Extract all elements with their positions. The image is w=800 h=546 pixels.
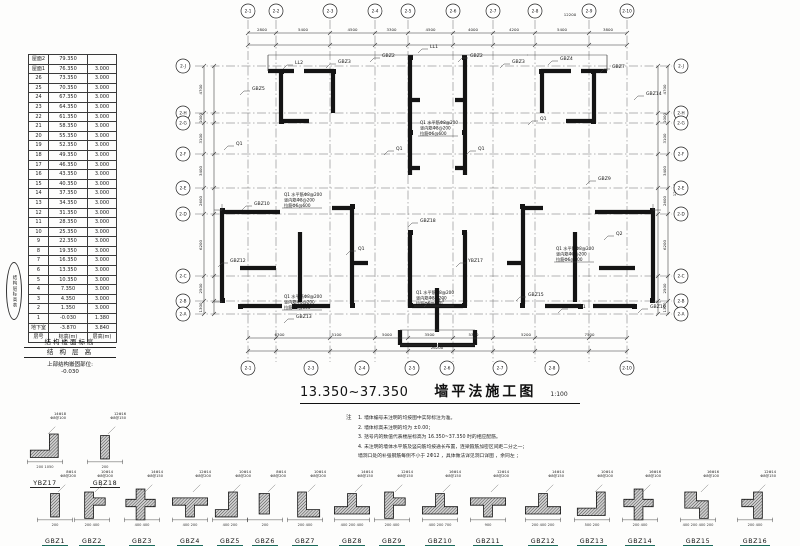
- dim-value: 5300: [469, 332, 479, 337]
- detail-section-shape: [283, 483, 327, 523]
- title-scale: 1:100: [550, 391, 567, 398]
- detail-label: GBZ8: [339, 537, 365, 546]
- wall-code-label: GBZ7: [612, 64, 625, 70]
- wall-code-label: Q1: [540, 116, 547, 122]
- wall-code-label: LL2: [295, 60, 303, 66]
- dim-value: 2600: [662, 196, 667, 206]
- detail-label: GBZ16: [740, 537, 771, 546]
- dim-value: 6300: [275, 332, 285, 337]
- detail-gbz15: 16Φ16Φ8@100400 200 400 200GBZ15: [676, 470, 720, 546]
- detail-label: GBZ14: [625, 537, 656, 546]
- detail-label: GBZ4: [177, 537, 203, 546]
- axis-label: 2-D: [179, 212, 186, 217]
- wall-code-label: GBZ12: [230, 258, 246, 264]
- detail-gbz10: 16Φ14Φ8@150400 200 700GBZ10: [418, 470, 462, 546]
- dim-value: 4500: [426, 27, 436, 32]
- wall-code-label: GBZ9: [598, 176, 611, 182]
- detail-label: GBZ10: [425, 537, 456, 546]
- detail-gbz16: 12Φ14Φ8@150200 400GBZ16: [733, 470, 777, 546]
- axis-label: 2-F: [678, 152, 685, 157]
- wall-code-label: Q1: [358, 246, 365, 252]
- wall-code-label: GBZ5: [252, 86, 265, 92]
- axis-label: 2-6: [450, 9, 457, 14]
- detail-rebar-note: 12Φ14Φ8@200: [466, 470, 510, 483]
- axis-label: 2-G: [179, 121, 187, 126]
- detail-gbz6: 8Φ14Φ8@200200GBZ6: [243, 470, 287, 546]
- detail-dimension: 900: [466, 523, 510, 528]
- axis-label: 2-G: [677, 121, 685, 126]
- axis-label: 2-1: [245, 9, 252, 14]
- detail-gbz14: 16Φ16Φ8@100200 400GBZ14: [618, 470, 662, 546]
- detail-dimension: 500 200: [570, 523, 614, 528]
- detail-rebar-note: 14Φ14Φ8@150: [521, 470, 565, 483]
- dim-value: 2500: [662, 283, 667, 293]
- wall-code-label: LL1: [430, 44, 438, 50]
- detail-section-shape: [618, 483, 662, 523]
- dim-value: 4700: [198, 84, 203, 94]
- dim-value: 3400: [662, 166, 667, 176]
- dim-value: 3400: [198, 166, 203, 176]
- dim-value: 3100: [198, 133, 203, 143]
- dim-value: 1000: [198, 113, 203, 123]
- detail-rebar-note: 16Φ16Φ8@100: [676, 470, 720, 483]
- wall-code-label: GBZ14: [646, 91, 662, 97]
- axis-label: 2-H: [179, 111, 186, 116]
- detail-rebar-note: 14Φ14Φ8@150: [120, 470, 164, 483]
- dim-value: 2500: [198, 283, 203, 293]
- axis-label: 2-7: [490, 9, 497, 14]
- detail-dimension: 400 200: [168, 523, 212, 528]
- drawing-title: 13.350~37.350 墙平法施工图 1:100: [300, 381, 580, 404]
- detail-dimension: 400 200 700: [418, 523, 462, 528]
- dim-value: 5200: [521, 332, 531, 337]
- detail-rebar-note: 8Φ14Φ8@200: [243, 470, 287, 483]
- axis-label: 2-6: [444, 366, 451, 371]
- axis-label: 2-4: [372, 9, 379, 14]
- detail-label: GBZ5: [217, 537, 243, 546]
- axis-label: 2-4: [359, 366, 366, 371]
- detail-section-shape: [330, 483, 374, 523]
- axis-label: 2-10: [622, 366, 632, 371]
- detail-dimension: 200 400: [618, 523, 662, 528]
- detail-dimension: 400 200 400 200: [676, 523, 720, 528]
- dim-value: 5100: [332, 332, 342, 337]
- drawing-sheet: 屋面279.350屋面176.3503.0002673.3503.0002570…: [0, 0, 800, 546]
- note-line: 墙洞口处的补强钢筋每侧不小于 2Φ12 ，具体做法详见洞口详图 ，余同左 ；: [358, 452, 658, 462]
- detail-section-shape: [676, 483, 720, 523]
- detail-dimension: 200 400: [733, 523, 777, 528]
- wall-code-label: Q2: [616, 231, 623, 237]
- title-text: 墙平法施工图: [434, 381, 536, 401]
- detail-label: GBZ6: [252, 537, 278, 546]
- detail-rebar-note: 12Φ16Φ8@150: [83, 412, 127, 425]
- axis-label: 2-C: [179, 274, 186, 279]
- axis-label: 2-A: [678, 312, 685, 317]
- axis-label: 2-8: [532, 9, 539, 14]
- wall-code-label: GBZ16: [650, 304, 666, 310]
- detail-rebar-note: 10Φ14Φ8@200: [70, 470, 114, 483]
- wall-code-label: Q1: [236, 141, 243, 147]
- detail-gbz4: 12Φ14Φ8@200400 200GBZ4: [168, 470, 212, 546]
- detail-dimension: 400 400: [120, 523, 164, 528]
- detail-gbz11: 12Φ14Φ8@200900GBZ11: [466, 470, 510, 546]
- detail-section-shape: [466, 483, 510, 523]
- detail-gbz7: 10Φ14Φ8@200200 400GBZ7: [283, 470, 327, 546]
- detail-label: GBZ13: [577, 537, 608, 546]
- detail-gbz12: 14Φ14Φ8@150200 400 200GBZ12: [521, 470, 565, 546]
- dim-value: 6200: [198, 240, 203, 250]
- axis-label: 2-E: [180, 186, 187, 191]
- detail-rebar-note: 12Φ14Φ8@150: [370, 470, 414, 483]
- detail-label: GBZ1: [42, 537, 68, 546]
- dim-value: 5000: [382, 332, 392, 337]
- wall-code-label: Q1: [396, 146, 403, 152]
- overall-dim-top: 12200: [564, 12, 577, 17]
- wall-code-label: GBZ15: [528, 292, 544, 298]
- dim-value: 3800: [603, 27, 613, 32]
- detail-gbz9: 12Φ14Φ8@150200 400GBZ9: [370, 470, 414, 546]
- detail-section-shape: [733, 483, 777, 523]
- detail-rebar-note: 16Φ14Φ8@150: [418, 470, 462, 483]
- axis-label: 2-C: [677, 274, 684, 279]
- axis-label: 2-A: [180, 312, 187, 317]
- detail-section-shape: [370, 483, 414, 523]
- detail-label: GBZ9: [379, 537, 405, 546]
- note-line: 3. 括号内的数值代表楼层标高为 16.350~37.350 时的相应配筋。: [358, 433, 658, 443]
- notes-prefix: 注: [346, 414, 352, 424]
- axis-label: 2-8: [549, 366, 556, 371]
- note-line: 1. 墙体编号未注明的均按图中实际标注为准。: [358, 414, 658, 424]
- dim-value: 5400: [298, 27, 308, 32]
- wall-code-label: GBZ13: [296, 314, 312, 320]
- axis-label: 2-B: [180, 299, 187, 304]
- dim-value: 1000: [662, 113, 667, 123]
- axis-label: 2-5: [409, 366, 416, 371]
- dim-value: 7500: [585, 332, 595, 337]
- axis-label: 2-E: [678, 186, 685, 191]
- detail-dimension: 200 400: [283, 523, 327, 528]
- axis-label: 2-5: [405, 9, 412, 14]
- detail-section-shape: [243, 483, 287, 523]
- axis-label: 2-3: [327, 9, 334, 14]
- detail-gbz3: 14Φ14Φ8@150400 400GBZ3: [120, 470, 164, 546]
- dim-value: 3500: [425, 332, 435, 337]
- general-notes: 注 1. 墙体编号未注明的均按图中实际标注为准。2. 墙体标高未注明的均为 ±0…: [358, 414, 658, 462]
- detail-rebar-note: 16Φ16Φ8@100: [618, 470, 662, 483]
- axis-label: 2-J: [180, 64, 186, 69]
- detail-rebar-note: 14Φ18Φ8@100: [23, 412, 67, 425]
- detail-dimension: 200 400: [370, 523, 414, 528]
- dim-value: 1300: [198, 302, 203, 312]
- axis-label: 2-7: [497, 366, 504, 371]
- detail-section-shape: [70, 483, 114, 523]
- axis-label: 2-H: [677, 111, 684, 116]
- axis-label: 2-10: [622, 9, 632, 14]
- dim-value: 4700: [662, 84, 667, 94]
- axis-label: 2-1: [245, 366, 252, 371]
- detail-rebar-note: 14Φ14Φ8@150: [330, 470, 374, 483]
- wall-code-label: GBZ3: [512, 59, 525, 65]
- dim-value: 2800: [257, 27, 267, 32]
- axis-label: 2-F: [180, 152, 187, 157]
- wall-code-label: GBZ2: [382, 53, 395, 59]
- detail-dimension: 200: [83, 465, 127, 470]
- dim-value: 4200: [509, 27, 519, 32]
- detail-label: GBZ15: [683, 537, 714, 546]
- detail-section-shape: [23, 425, 67, 465]
- wall-code-label: GBZ11: [570, 304, 586, 310]
- dim-value: 3300: [387, 27, 397, 32]
- detail-dimension: 200 400: [70, 523, 114, 528]
- axis-label: 2-D: [677, 212, 684, 217]
- detail-section-shape: [570, 483, 614, 523]
- dim-value: 6200: [662, 240, 667, 250]
- axis-label: 2-J: [678, 64, 684, 69]
- axis-label: 2-3: [308, 366, 315, 371]
- detail-label: GBZ2: [79, 537, 105, 546]
- detail-label: GBZ11: [473, 537, 504, 546]
- detail-rebar-note: 10Φ14Φ8@200: [570, 470, 614, 483]
- wall-code-label: Q1: [478, 146, 485, 152]
- wall-code-label: GBZ4: [560, 56, 573, 62]
- detail-section-shape: [418, 483, 462, 523]
- detail-rebar-note: 12Φ14Φ8@150: [733, 470, 777, 483]
- wall-code-label: GBZ3: [338, 59, 351, 65]
- title-elevation-range: 13.350~37.350: [300, 385, 408, 400]
- dim-value: 4500: [348, 27, 358, 32]
- axis-label: 2-2: [273, 9, 280, 14]
- detail-section-shape: [168, 483, 212, 523]
- detail-rebar-note: 10Φ14Φ8@200: [283, 470, 327, 483]
- detail-section-shape: [521, 483, 565, 523]
- detail-label: GBZ7: [292, 537, 318, 546]
- axis-label: 2-B: [678, 299, 685, 304]
- wall-code-label: YBZ17: [467, 258, 483, 264]
- dim-value: 5400: [557, 27, 567, 32]
- dim-value: 4000: [468, 27, 478, 32]
- note-line: 4. 未注明的墙体水平筋及竖向筋均按通长布置，连梁箍筋加密区间距二分之一；: [358, 443, 658, 453]
- detail-dimension: 200 1050: [23, 465, 67, 470]
- dim-value: 3100: [662, 133, 667, 143]
- note-line: 2. 墙体标高未注明的均为 ±0.00；: [358, 424, 658, 434]
- detail-rebar-note: 12Φ14Φ8@200: [168, 470, 212, 483]
- axis-label: 2-9: [586, 9, 593, 14]
- detail-gbz8: 14Φ14Φ8@150400 200 400GBZ8: [330, 470, 374, 546]
- detail-dimension: 200 400 200: [521, 523, 565, 528]
- detail-section-shape: [83, 425, 127, 465]
- detail-section-shape: [120, 483, 164, 523]
- detail-label: GBZ12: [528, 537, 559, 546]
- wall-code-label: GBZ2: [470, 53, 483, 59]
- dim-value: 2600: [198, 196, 203, 206]
- detail-dimension: 400 200 400: [330, 523, 374, 528]
- detail-gbz2: 10Φ14Φ8@200200 400GBZ2: [70, 470, 114, 546]
- overall-dim-bottom: 26200: [431, 345, 444, 350]
- wall-code-label: GBZ18: [420, 218, 436, 224]
- detail-label: GBZ3: [129, 537, 155, 546]
- detail-gbz13: 10Φ14Φ8@200500 200GBZ13: [570, 470, 614, 546]
- detail-dimension: 200: [243, 523, 287, 528]
- wall-code-label: GBZ10: [254, 201, 270, 207]
